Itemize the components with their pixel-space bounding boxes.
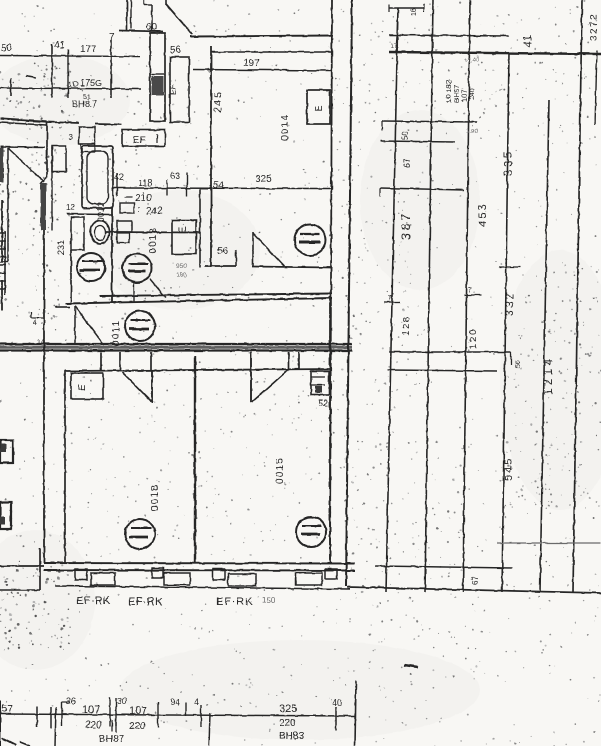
svg-text:0015: 0015: [275, 457, 286, 484]
svg-text:41: 41: [54, 40, 66, 51]
svg-text:118: 118: [138, 178, 152, 188]
svg-text:+2.40: +2.40: [464, 58, 480, 64]
svg-text:3: 3: [68, 133, 73, 142]
svg-text:41: 41: [522, 35, 534, 47]
svg-text:3272: 3272: [589, 13, 600, 41]
svg-text:42: 42: [114, 172, 124, 182]
svg-text:157: 157: [0, 703, 13, 715]
svg-text:36: 36: [66, 696, 76, 706]
svg-text:BH87: BH87: [99, 734, 124, 745]
svg-text:4: 4: [33, 320, 37, 327]
svg-text:150: 150: [262, 596, 276, 605]
svg-text:12: 12: [66, 203, 75, 212]
svg-text:0013: 0013: [148, 227, 159, 254]
svg-text:220: 220: [279, 718, 296, 729]
svg-text:7: 7: [468, 287, 472, 294]
svg-text:231: 231: [56, 240, 66, 255]
svg-text:950: 950: [176, 263, 187, 270]
svg-text:180: 180: [176, 272, 187, 279]
svg-text:BH83: BH83: [279, 731, 304, 742]
svg-text:175G: 175G: [80, 78, 102, 88]
svg-text:40: 40: [332, 698, 342, 708]
svg-text:177: 177: [80, 44, 97, 55]
svg-text:BH8.7: BH8.7: [72, 99, 97, 109]
svg-text:56: 56: [515, 360, 522, 368]
svg-text:EF: EF: [133, 135, 146, 146]
svg-text:1214: 1214: [543, 355, 555, 395]
svg-text:107: 107: [82, 704, 100, 716]
svg-text:107: 107: [460, 89, 469, 102]
svg-text:335: 335: [503, 149, 515, 176]
svg-text:210: 210: [135, 193, 152, 204]
svg-text:EF∙RK: EF∙RK: [216, 596, 253, 608]
svg-text:94: 94: [170, 697, 180, 707]
svg-text:EF∙RK: EF∙RK: [76, 595, 111, 607]
svg-text::: :: [138, 205, 140, 214]
svg-text:220: 220: [129, 721, 146, 732]
svg-text:242: 242: [146, 206, 163, 217]
svg-text:7: 7: [504, 259, 508, 266]
svg-text:4: 4: [194, 697, 199, 707]
svg-text:332: 332: [504, 291, 516, 316]
svg-text:1D: 1D: [68, 80, 78, 89]
svg-text:7: 7: [109, 32, 115, 43]
svg-text:EF∙RK: EF∙RK: [128, 596, 163, 608]
svg-text:67: 67: [471, 576, 480, 585]
svg-text:387: 387: [399, 211, 413, 240]
svg-text:50,: 50,: [401, 129, 410, 140]
svg-text:0018: 0018: [150, 484, 161, 511]
svg-text:52: 52: [318, 398, 328, 408]
svg-text:453: 453: [477, 202, 489, 227]
svg-text:60: 60: [146, 22, 158, 33]
svg-text:325: 325: [255, 174, 272, 185]
svg-text:1.99: 1.99: [466, 129, 478, 135]
svg-text:240: 240: [469, 88, 476, 100]
svg-text:54: 54: [213, 180, 225, 191]
svg-text:0012: 0012: [96, 202, 106, 222]
svg-text:545: 545: [503, 457, 515, 481]
svg-text:107: 107: [129, 705, 147, 717]
svg-text:30: 30: [117, 696, 127, 706]
svg-text:120: 120: [468, 328, 479, 349]
svg-text:56: 56: [217, 246, 229, 257]
svg-text:56: 56: [170, 45, 182, 56]
svg-text:EF: EF: [169, 85, 178, 95]
svg-text:197: 197: [243, 58, 260, 69]
svg-text:17: 17: [390, 43, 398, 50]
svg-text:E: E: [77, 384, 88, 391]
svg-text:0011: 0011: [111, 320, 122, 346]
svg-text:7: 7: [388, 295, 392, 302]
svg-text:63: 63: [170, 171, 180, 181]
svg-text:50: 50: [1, 43, 13, 54]
svg-text:325: 325: [279, 703, 297, 715]
svg-text:245: 245: [212, 91, 224, 113]
svg-text:67: 67: [402, 158, 412, 168]
svg-text:0014: 0014: [280, 114, 291, 141]
svg-text:E: E: [314, 105, 325, 112]
svg-text:220: 220: [85, 720, 102, 731]
svg-text:16: 16: [411, 8, 418, 16]
svg-text:128: 128: [401, 315, 412, 336]
